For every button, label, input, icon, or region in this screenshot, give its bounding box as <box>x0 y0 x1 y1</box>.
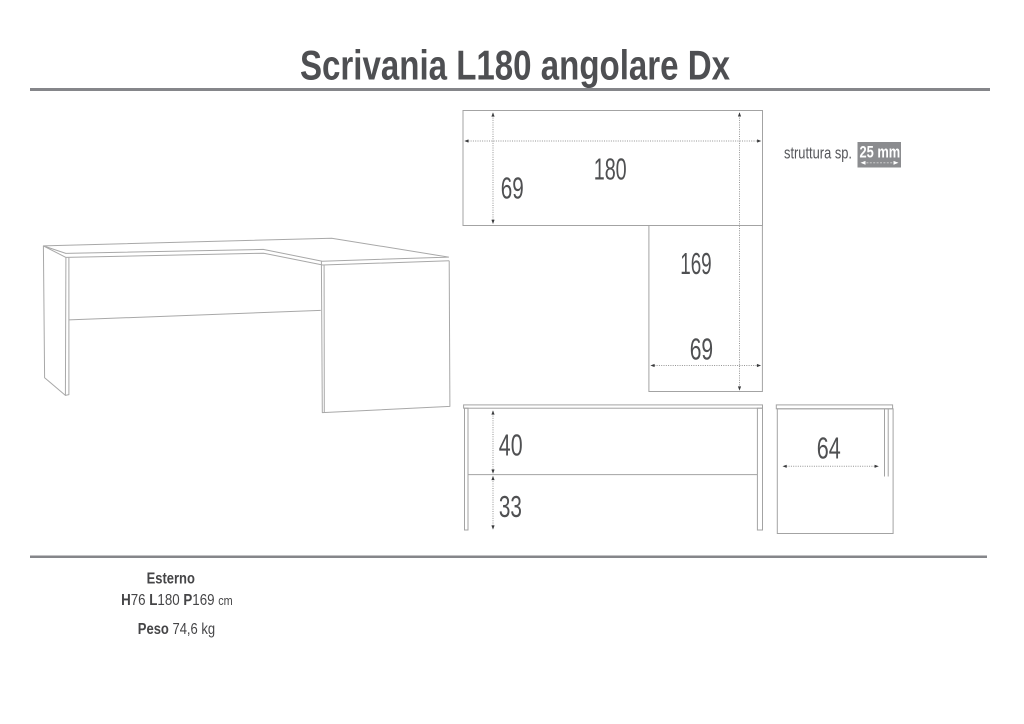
svg-text:H76 L180 P169 cm: H76 L180 P169 cm <box>121 592 233 609</box>
svg-text:69: 69 <box>690 332 713 367</box>
svg-text:69: 69 <box>501 171 524 206</box>
svg-text:64: 64 <box>817 431 841 466</box>
svg-text:169: 169 <box>680 246 712 281</box>
svg-text:180: 180 <box>594 152 627 187</box>
svg-text:33: 33 <box>499 489 522 524</box>
svg-text:25 mm: 25 mm <box>860 143 901 162</box>
svg-text:Peso 74,6 kg: Peso 74,6 kg <box>138 621 215 638</box>
svg-text:Esterno: Esterno <box>147 571 195 588</box>
svg-text:struttura sp.: struttura sp. <box>784 144 852 163</box>
svg-text:Scrivania L180 angolare Dx: Scrivania L180 angolare Dx <box>300 41 730 88</box>
svg-text:40: 40 <box>499 428 523 463</box>
